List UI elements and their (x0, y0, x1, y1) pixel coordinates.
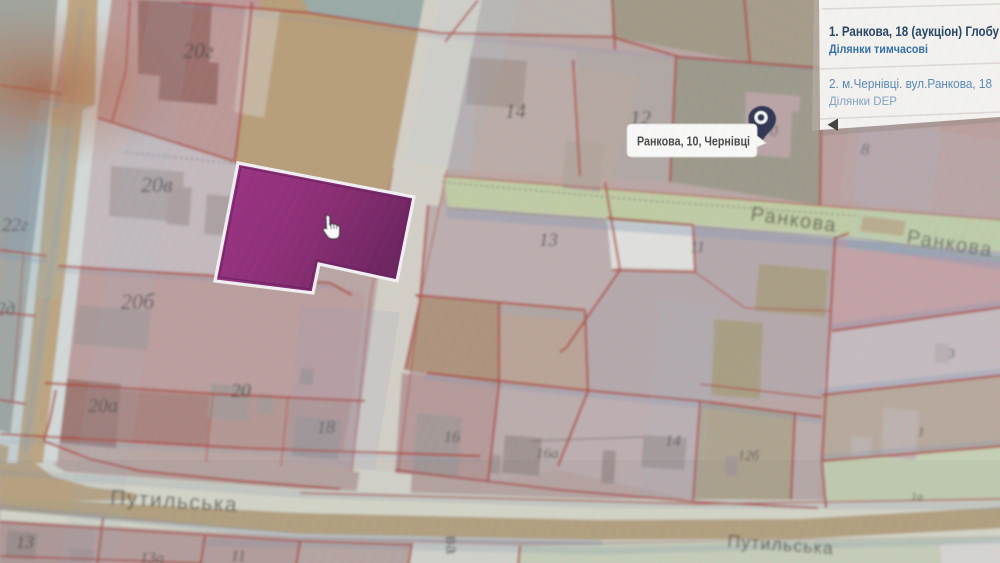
svg-text:2. м.Чернівці. вул.Ранкова, 18: 2. м.Чернівці. вул.Ранкова, 18 (829, 77, 992, 91)
svg-text:Ранкова, 10, Чернівці: Ранкова, 10, Чернівці (637, 135, 750, 149)
svg-text:1. Ранкова, 18 (аукціон) Глобу: 1. Ранкова, 18 (аукціон) Глобу (829, 23, 999, 39)
svg-text:Ділянки DEP: Ділянки DEP (829, 96, 897, 108)
svg-text:Ділянки тимчасові: Ділянки тимчасові (829, 44, 928, 56)
